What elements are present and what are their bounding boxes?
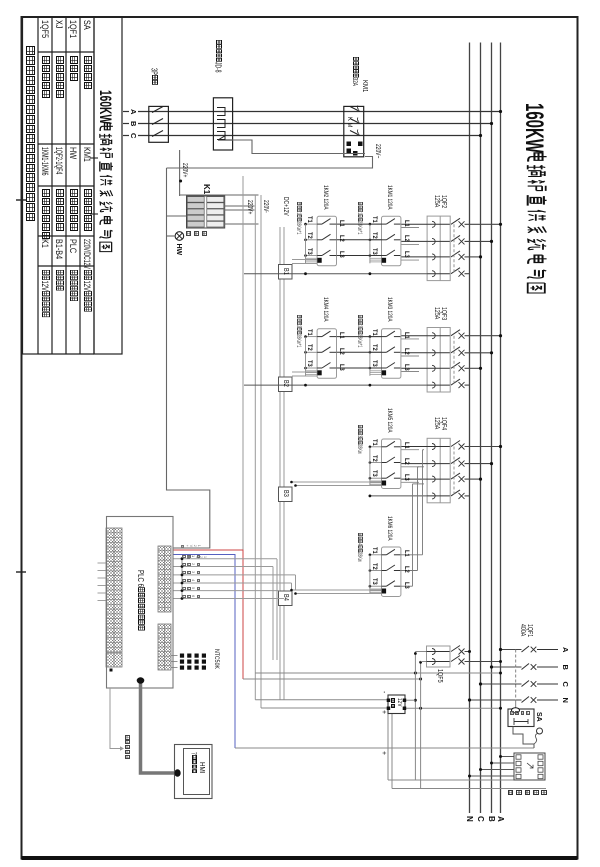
- svg-text:160KW: 160KW: [520, 103, 548, 153]
- svg-text:160KW: 160KW: [96, 90, 114, 124]
